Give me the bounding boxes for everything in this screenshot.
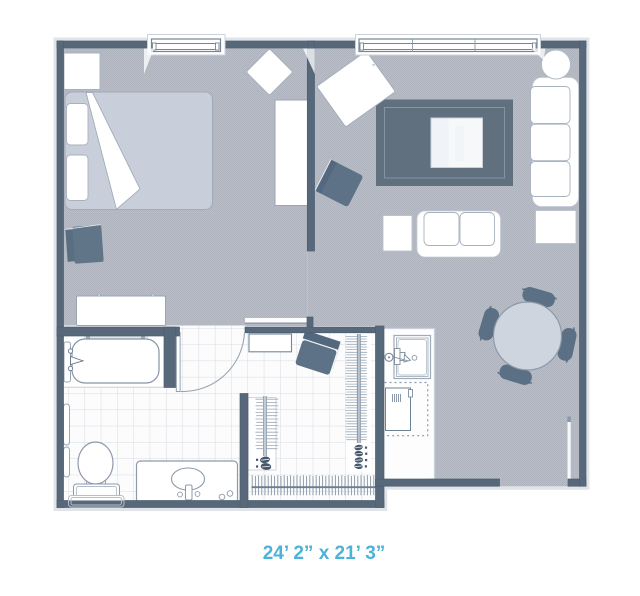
svg-text:24’ 2” x 21’ 3”: 24’ 2” x 21’ 3” bbox=[263, 543, 386, 564]
